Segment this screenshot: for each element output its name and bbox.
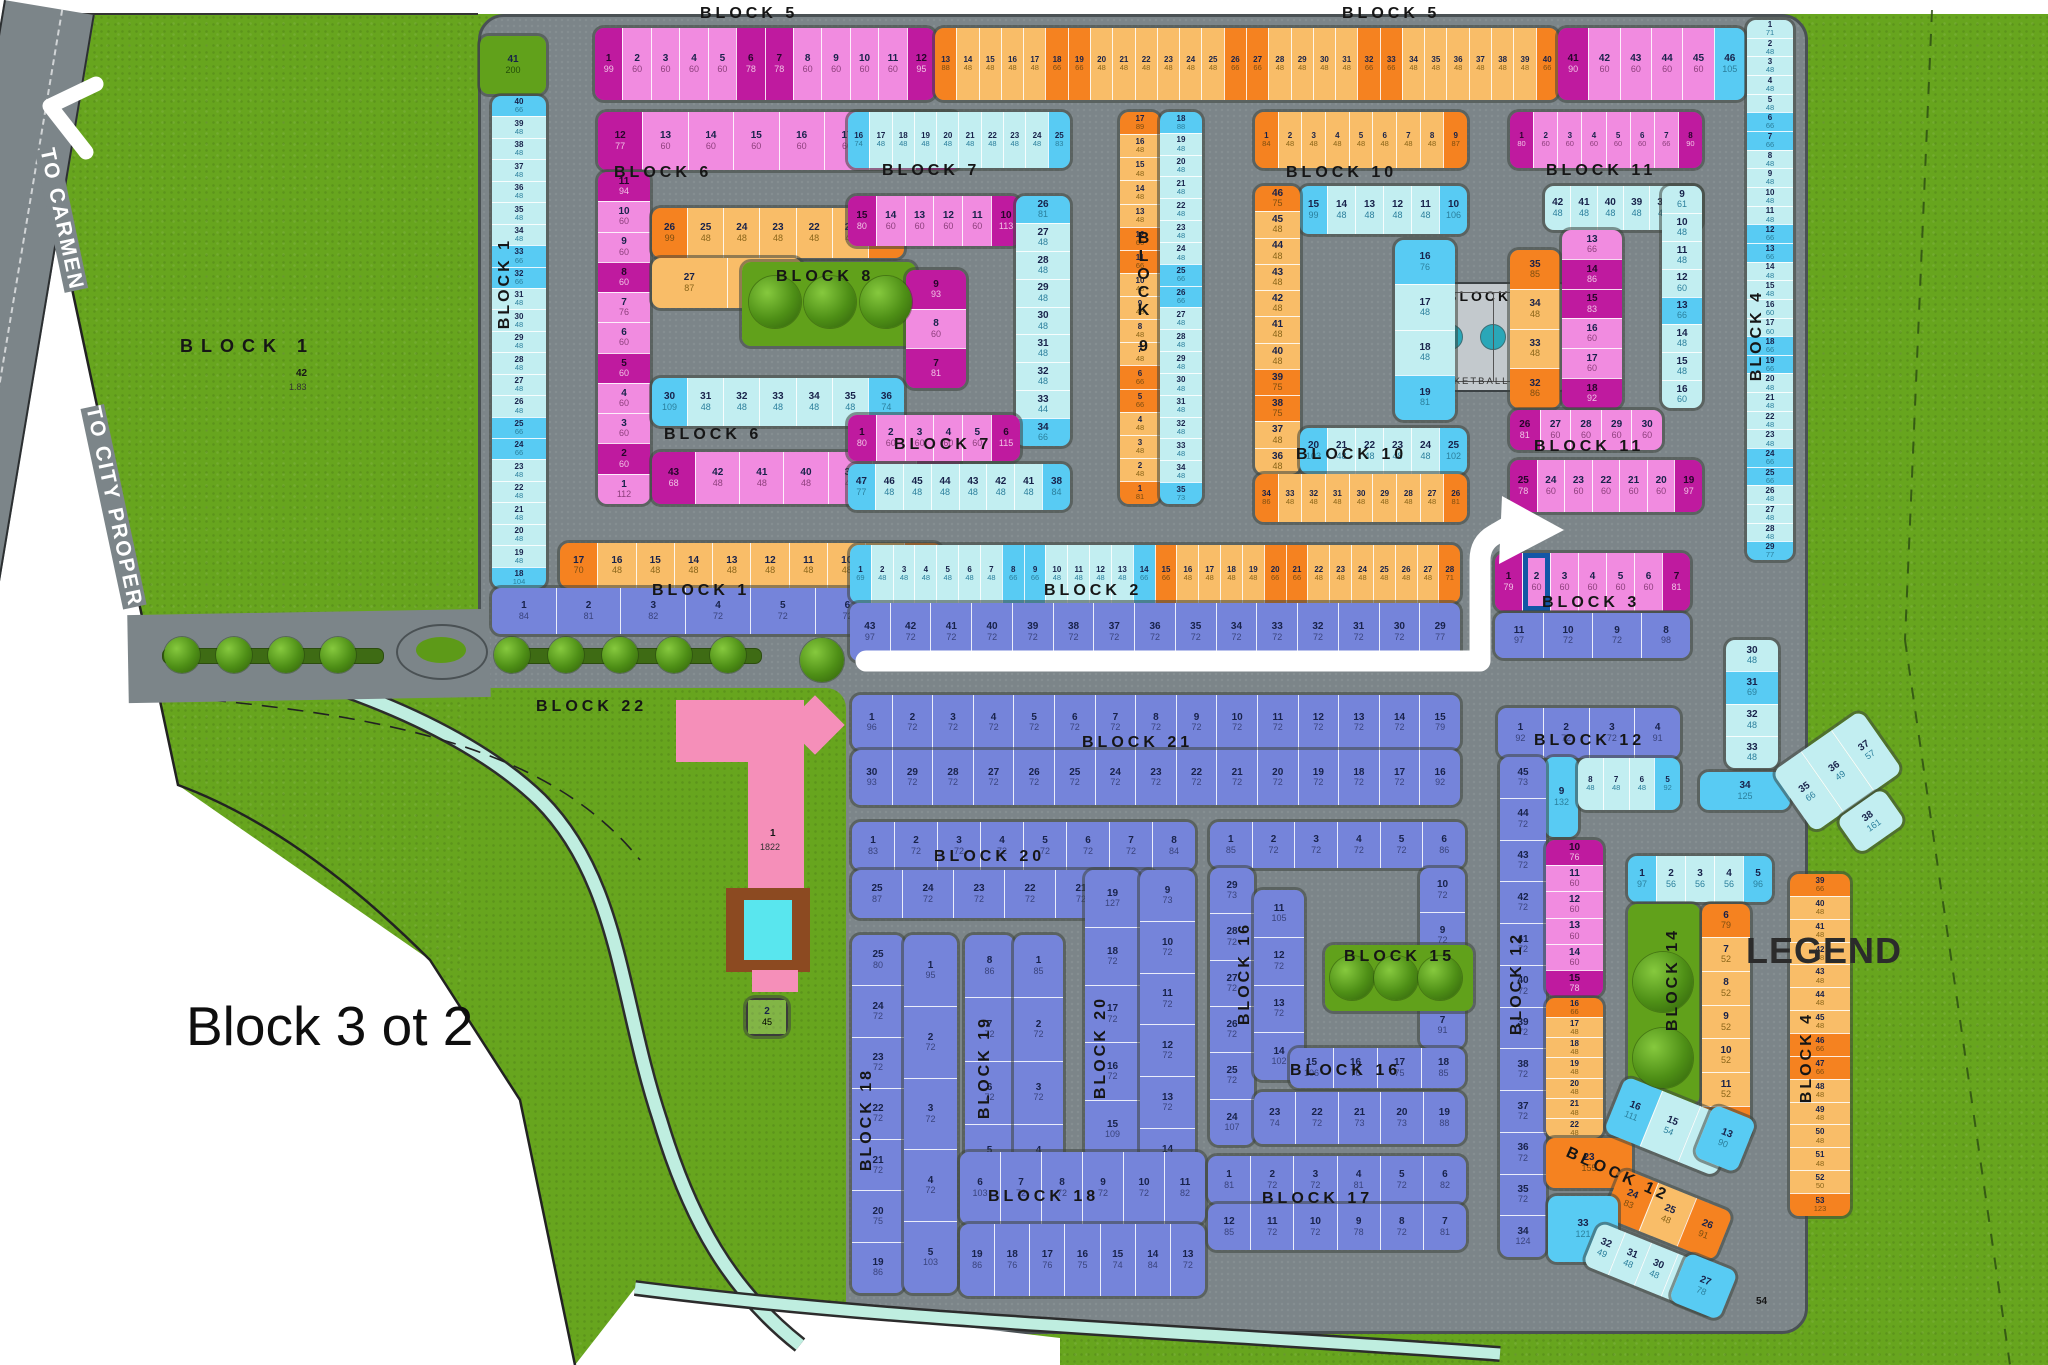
label-block-5: BLOCK 5 [1342, 5, 1440, 23]
label-block-18: BLOCK 18 [988, 1188, 1099, 1206]
label-1-83: 1.83 [289, 382, 307, 392]
label-legend: LEGEND [1746, 930, 1902, 972]
label-block-12: BLOCK 12 [1534, 732, 1645, 750]
label-block-10: BLOCK 10 [1296, 446, 1407, 464]
label-42: 42 [296, 368, 307, 379]
label-block-12: BLOCK 12 [1508, 932, 1526, 1035]
label-block-8: BLOCK 8 [776, 268, 874, 286]
label-1822: 1822 [760, 842, 780, 852]
label-block-10: BLOCK 10 [1286, 164, 1397, 182]
label-block-15: BLOCK 15 [1344, 948, 1455, 966]
label-block-4: BLOCK 4 [1748, 290, 1766, 381]
label-block-2: BLOCK 2 [1044, 582, 1142, 600]
label-block-16: BLOCK 16 [1236, 922, 1254, 1025]
label-block-5: BLOCK 5 [700, 5, 798, 23]
label-block-11: BLOCK 11 [1546, 162, 1656, 180]
label-block-17: BLOCK 17 [1262, 1190, 1373, 1208]
label-block-1: BLOCK 1 [496, 238, 514, 329]
label-block-4: BLOCK 4 [1798, 1012, 1816, 1103]
label-block-14: BLOCK 14 [1664, 928, 1682, 1031]
label-block-1: BLOCK 1 [180, 336, 315, 357]
label-54: 54 [1756, 1296, 1767, 1307]
label-block-20: BLOCK 20 [1092, 996, 1110, 1099]
label-block-6: BLOCK 6 [664, 426, 762, 444]
label-1: 1 [770, 828, 776, 839]
label-block-11: BLOCK 11 [1534, 438, 1644, 456]
label-block-19: BLOCK 19 [976, 1016, 994, 1119]
label-block-20: BLOCK 20 [934, 848, 1045, 866]
label-block-7: BLOCK 7 [894, 436, 992, 454]
label-block-9: BLOCK 9 [1134, 230, 1152, 356]
label-block-1: BLOCK 1 [652, 582, 750, 600]
label-block-18: BLOCK 18 [858, 1068, 876, 1171]
label-block-6: BLOCK 6 [614, 164, 712, 182]
route-arrowhead-icon [1499, 496, 1564, 564]
label-block-3-ot-2: Block 3 ot 2 [186, 994, 473, 1058]
subdivision-map: BLOCK 13 BASKETBALL COURT 19926036046056… [0, 0, 2048, 1365]
label-block-16: BLOCK 16 [1290, 1062, 1401, 1080]
label-block-7: BLOCK 7 [882, 162, 980, 180]
label-block-21: BLOCK 21 [1082, 734, 1193, 752]
label-block-22: BLOCK 22 [536, 698, 647, 716]
route-arrow [0, 0, 2048, 1365]
label-block-3: BLOCK 3 [1542, 594, 1640, 612]
